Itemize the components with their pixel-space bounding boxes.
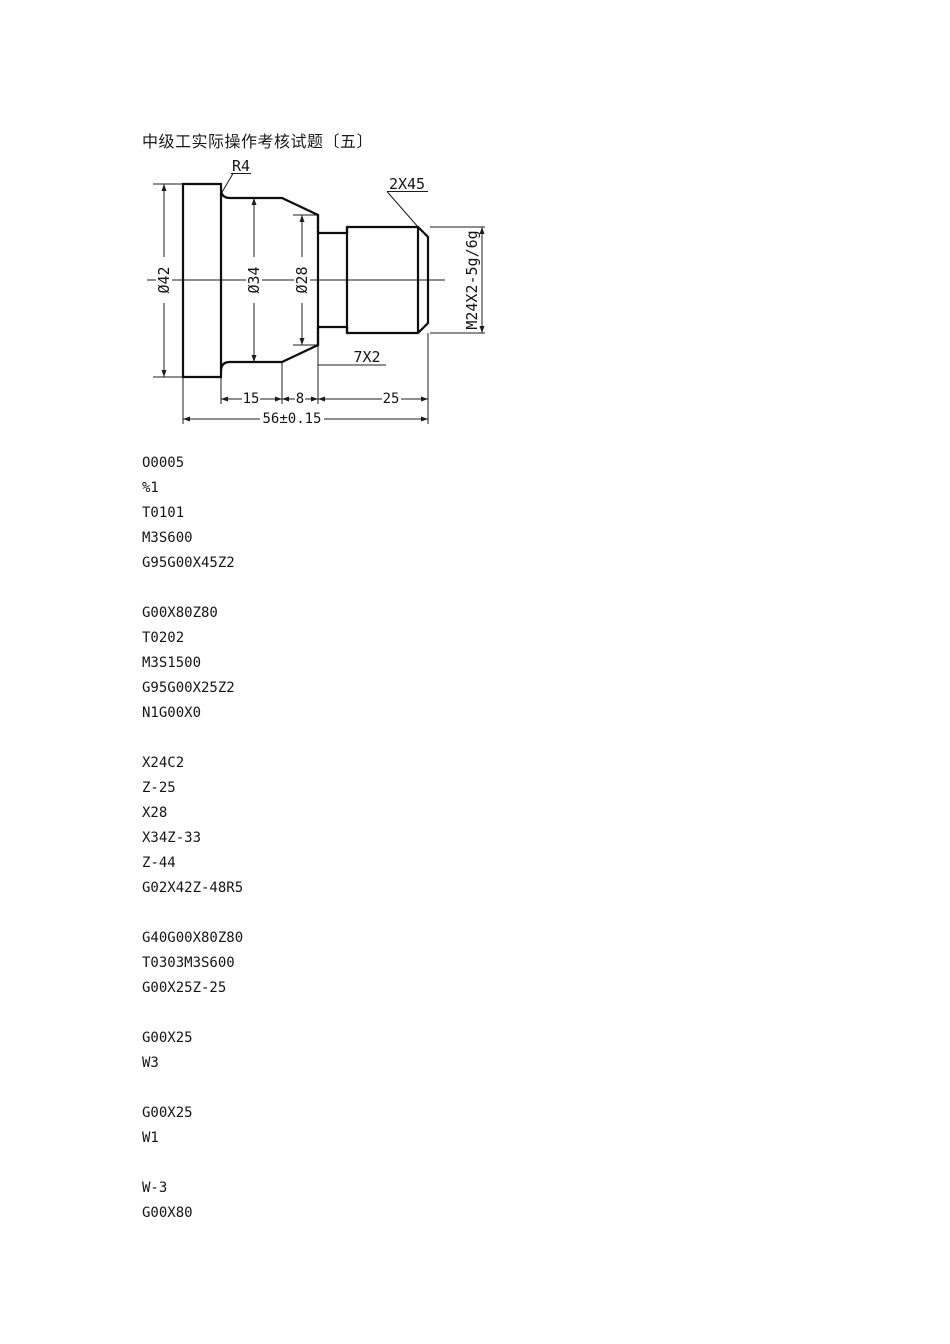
gcode-line: T0303M3S600 [142,951,243,976]
thread-spec-label: M24X2-5g/6g [463,230,481,329]
part-drawing-svg: R4 2X45 Ø42 Ø34 Ø28 M24X2-5g/6g 7X2 15 8… [145,158,490,443]
gcode-line: M3S1500 [142,651,243,676]
page-title: 中级工实际操作考核试题〔五〕 [142,128,373,152]
gcode-line: G00X25 [142,1101,243,1126]
gcode-line: T0202 [142,626,243,651]
groove-label: 7X2 [353,348,380,366]
gcode-line: W3 [142,1051,243,1076]
fillet-radius-label: R4 [232,158,250,175]
length-15-label: 15 [243,391,260,407]
gcode-line: Z-25 [142,776,243,801]
gcode-line: N1G00X0 [142,701,243,726]
overall-length-label: 56±0.15 [262,411,321,427]
gcode-line: %1 [142,476,243,501]
length-8-label: 8 [296,391,304,407]
gcode-line: X34Z-33 [142,826,243,851]
document-page: { "page": { "title": "中级工实际操作考核试题〔五〕" },… [0,0,950,1344]
gcode-line: M3S600 [142,526,243,551]
length-25-label: 25 [383,391,400,407]
gcode-line: G95G00X45Z2 [142,551,243,576]
gcode-line: O0005 [142,451,243,476]
gcode-line: G00X80Z80 [142,601,243,626]
gcode-line: X24C2 [142,751,243,776]
gcode-line: W1 [142,1126,243,1151]
chamfer-label: 2X45 [389,175,425,193]
gcode-listing: O0005%1T0101M3S600G95G00X45Z2G00X80Z80T0… [142,451,243,1251]
gcode-line: G00X25 [142,1026,243,1051]
gcode-line: G00X25Z-25 [142,976,243,1001]
gcode-line: W-3 [142,1176,243,1201]
gcode-block: G00X25W3 [142,1026,243,1076]
gcode-block: G00X80Z80T0202M3S1500G95G00X25Z2N1G00X0 [142,601,243,726]
technical-drawing: R4 2X45 Ø42 Ø34 Ø28 M24X2-5g/6g 7X2 15 8… [145,158,490,443]
gcode-line: G95G00X25Z2 [142,676,243,701]
diameter-28-label: Ø28 [293,266,311,293]
gcode-block: O0005%1T0101M3S600G95G00X45Z2 [142,451,243,576]
dimension-arrows [162,184,485,422]
gcode-block: W-3G00X80 [142,1176,243,1226]
gcode-line: T0101 [142,501,243,526]
gcode-line: G00X80 [142,1201,243,1226]
gcode-line: Z-44 [142,851,243,876]
diameter-34-label: Ø34 [245,266,263,293]
gcode-block: G40G00X80Z80T0303M3S600G00X25Z-25 [142,926,243,1001]
gcode-line: X28 [142,801,243,826]
gcode-line: G40G00X80Z80 [142,926,243,951]
gcode-block: X24C2Z-25X28X34Z-33Z-44G02X42Z-48R5 [142,751,243,901]
gcode-line: G02X42Z-48R5 [142,876,243,901]
diameter-42-label: Ø42 [155,266,173,293]
gcode-block: G00X25W1 [142,1101,243,1151]
